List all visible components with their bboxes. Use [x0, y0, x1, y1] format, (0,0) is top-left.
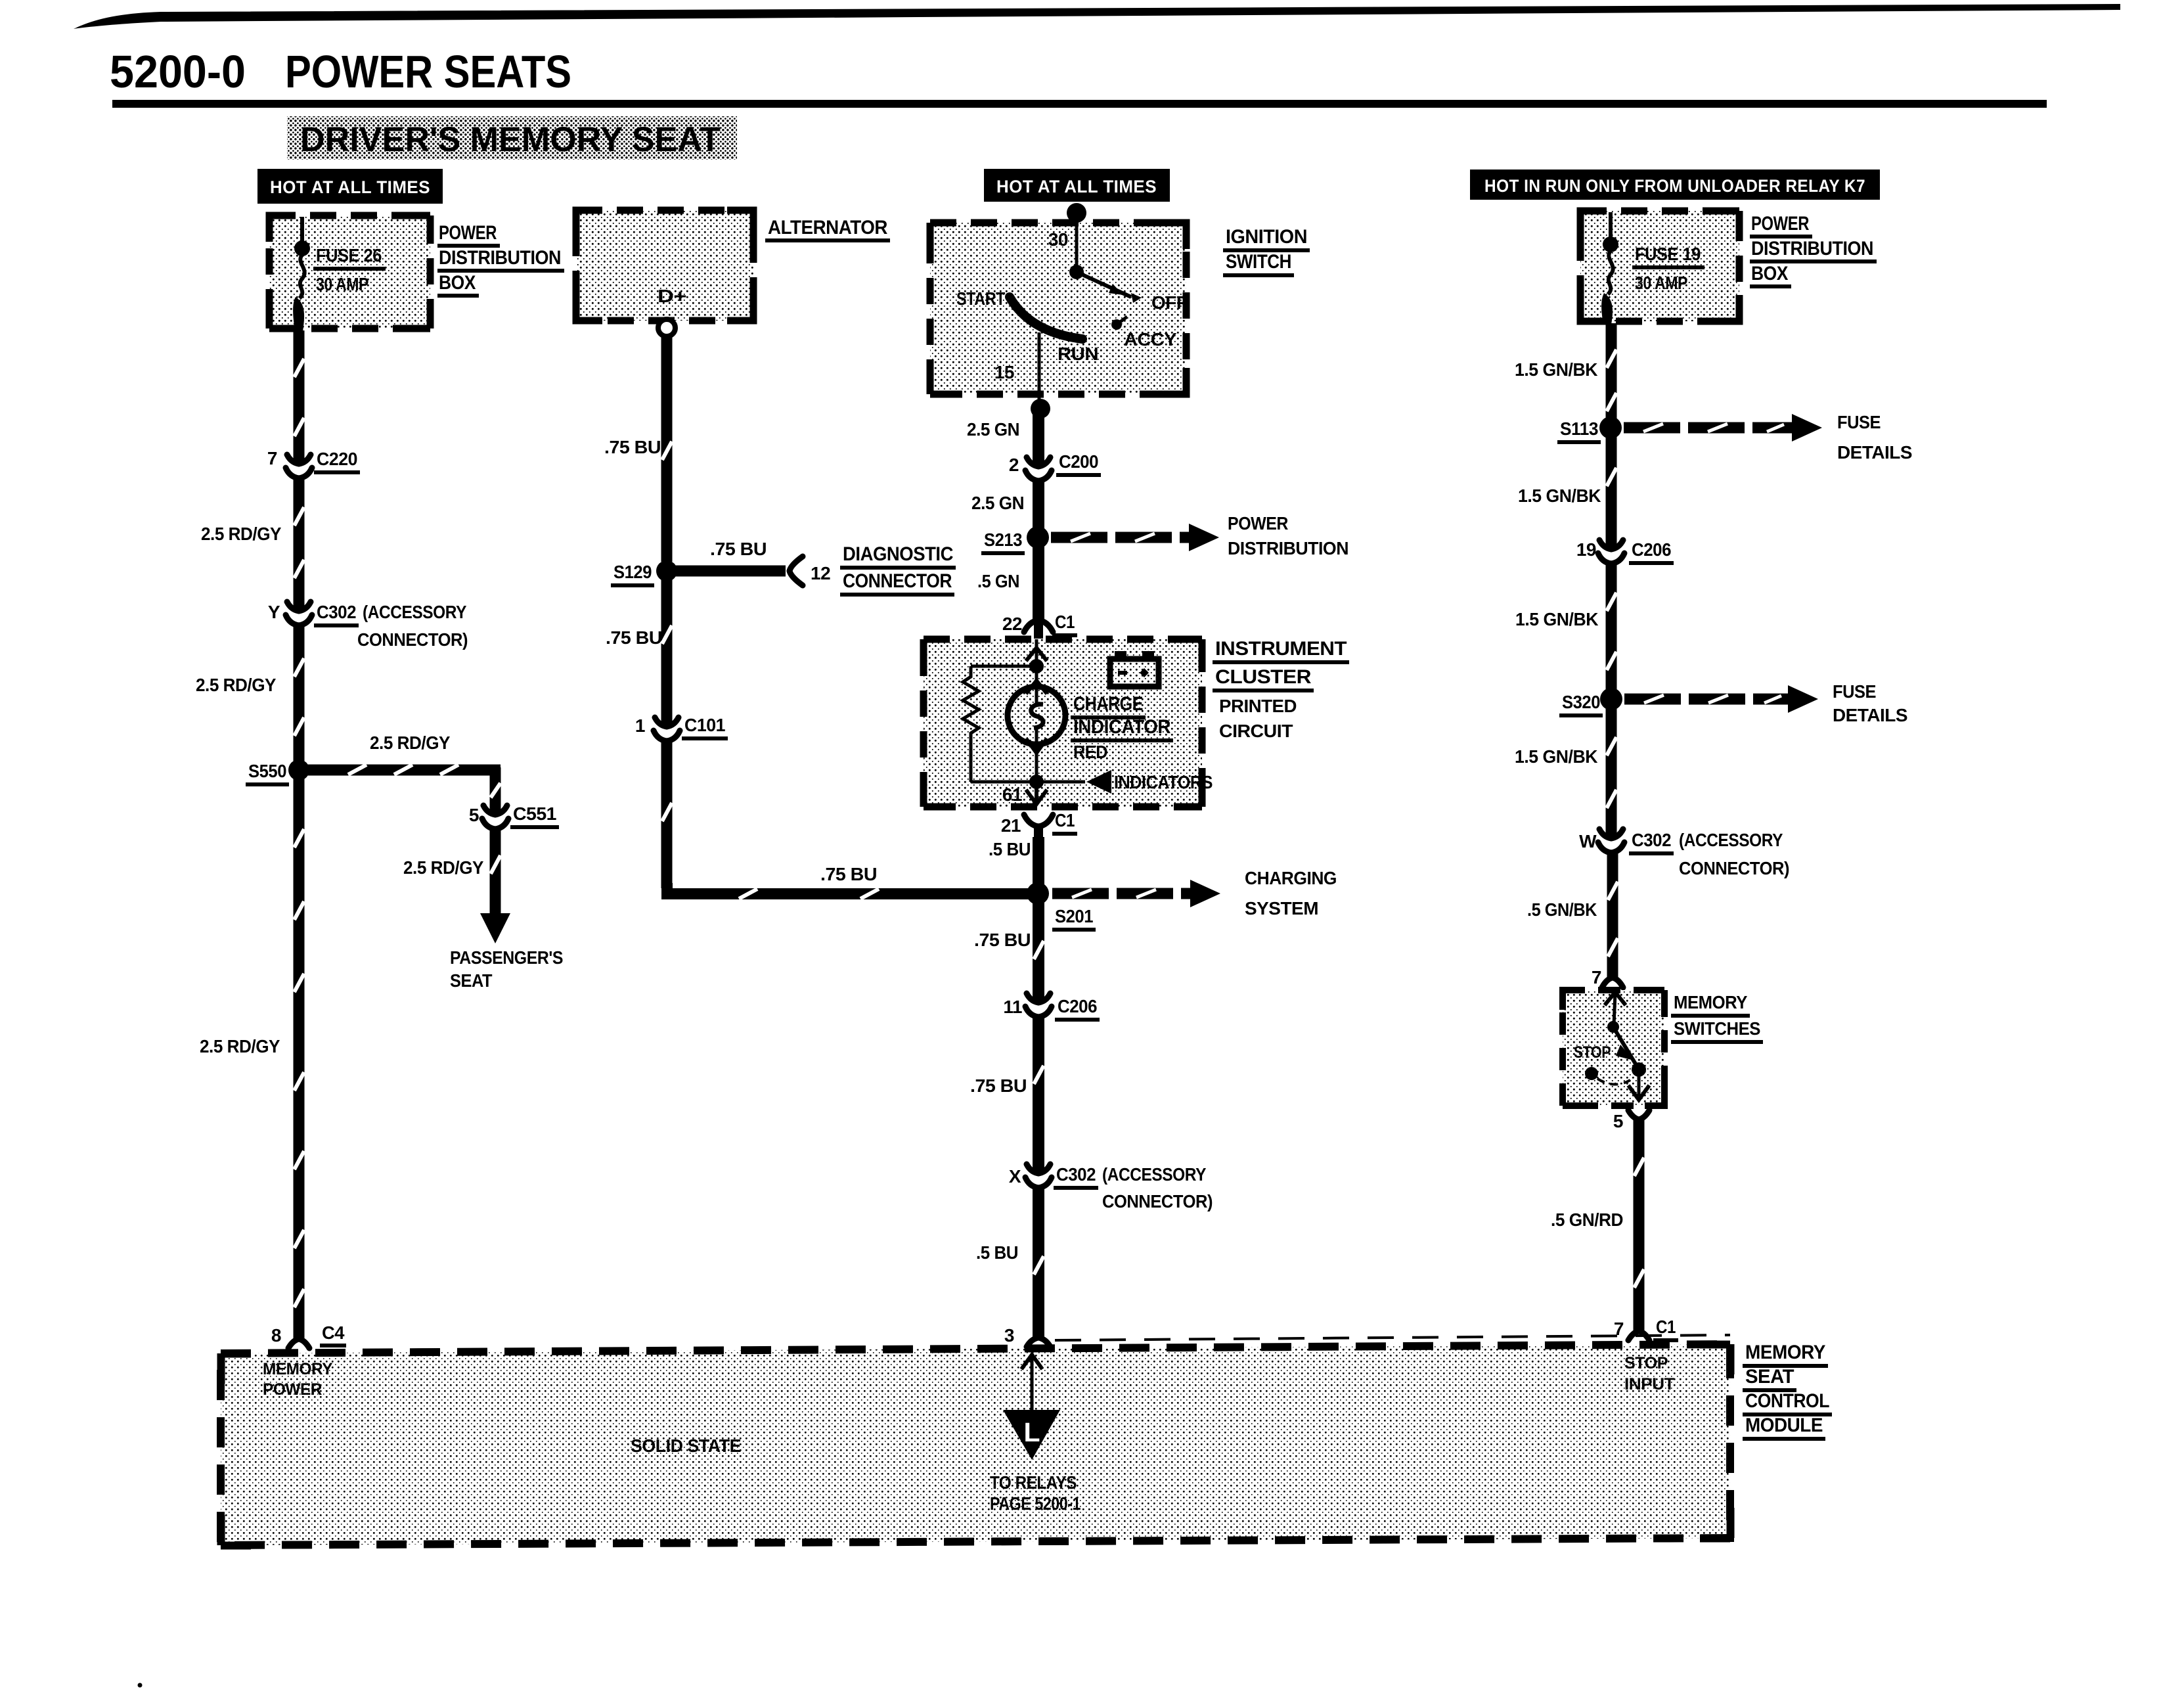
- svg-text:5: 5: [469, 805, 479, 825]
- svg-text:ACCY: ACCY: [1124, 329, 1177, 350]
- svg-text:SEAT: SEAT: [1745, 1366, 1794, 1388]
- svg-text:S201: S201: [1055, 906, 1093, 926]
- svg-text:15: 15: [994, 362, 1014, 382]
- svg-text:C206: C206: [1632, 539, 1671, 560]
- svg-text:.5 GN/BK: .5 GN/BK: [1527, 899, 1597, 920]
- svg-text:3: 3: [1004, 1325, 1014, 1346]
- svg-text:2.5 RD/GY: 2.5 RD/GY: [200, 1036, 280, 1056]
- svg-text:CONTROL: CONTROL: [1745, 1390, 1829, 1412]
- svg-text:POWER: POWER: [439, 222, 497, 244]
- svg-text:POWER: POWER: [1228, 513, 1288, 533]
- svg-text:C1: C1: [1055, 810, 1075, 830]
- svg-text:5200-0: 5200-0: [110, 46, 246, 97]
- svg-text:MEMORY: MEMORY: [1745, 1342, 1825, 1363]
- svg-text:S113: S113: [1560, 419, 1598, 439]
- svg-text:MODULE: MODULE: [1745, 1414, 1823, 1436]
- svg-text:SWITCH: SWITCH: [1226, 251, 1291, 273]
- svg-text:7: 7: [1592, 967, 1601, 987]
- svg-text:.75 BU: .75 BU: [710, 539, 767, 559]
- svg-text:S550: S550: [248, 761, 286, 781]
- svg-text:HOT AT ALL TIMES: HOT AT ALL TIMES: [270, 177, 430, 197]
- svg-text:.75 BU: .75 BU: [606, 627, 662, 648]
- svg-text:30 AMP: 30 AMP: [316, 274, 368, 294]
- svg-text:.75 BU: .75 BU: [970, 1075, 1027, 1096]
- svg-text:30: 30: [1048, 229, 1068, 250]
- svg-text:CONNECTOR: CONNECTOR: [843, 570, 952, 592]
- svg-text:INSTRUMENT: INSTRUMENT: [1215, 638, 1347, 660]
- svg-text:S129: S129: [613, 562, 652, 582]
- svg-text:SEAT: SEAT: [450, 970, 492, 991]
- svg-text:C302: C302: [1632, 830, 1671, 850]
- svg-text:CLUSTER: CLUSTER: [1215, 666, 1312, 688]
- svg-text:STOP: STOP: [1574, 1043, 1611, 1062]
- svg-text:2.5 RD/GY: 2.5 RD/GY: [196, 675, 277, 695]
- svg-text:CHARGE: CHARGE: [1073, 693, 1143, 715]
- svg-text:2.5 GN: 2.5 GN: [971, 493, 1024, 513]
- svg-text:.75 BU: .75 BU: [820, 864, 877, 884]
- svg-text:HOT IN RUN ONLY FROM UNLOADER: HOT IN RUN ONLY FROM UNLOADER RELAY K7: [1484, 176, 1865, 196]
- svg-text:2.5 RD/GY: 2.5 RD/GY: [370, 733, 451, 753]
- svg-text:PRINTED: PRINTED: [1219, 696, 1297, 716]
- svg-text:1.5 GN/BK: 1.5 GN/BK: [1515, 359, 1597, 380]
- svg-text:START: START: [956, 288, 1005, 309]
- svg-text:.75 BU: .75 BU: [974, 930, 1031, 950]
- svg-text:L: L: [1023, 1417, 1040, 1447]
- svg-text:7: 7: [267, 448, 277, 468]
- svg-text:DETAILS: DETAILS: [1833, 705, 1907, 725]
- svg-text:DETAILS: DETAILS: [1837, 442, 1912, 463]
- svg-text:MEMORY: MEMORY: [1674, 992, 1748, 1012]
- svg-text:.5 BU: .5 BU: [989, 839, 1031, 859]
- svg-text:2: 2: [1009, 455, 1019, 475]
- svg-text:(ACCESSORY: (ACCESSORY: [1679, 830, 1783, 850]
- svg-text:.75 BU: .75 BU: [604, 437, 661, 457]
- svg-text:CONNECTOR): CONNECTOR): [357, 629, 468, 650]
- svg-text:IGNITION: IGNITION: [1226, 226, 1307, 248]
- svg-text:INDICATOR: INDICATOR: [1073, 716, 1171, 738]
- svg-text:11: 11: [1003, 997, 1022, 1017]
- svg-text:5: 5: [1613, 1111, 1623, 1131]
- svg-text:RED: RED: [1073, 742, 1107, 762]
- svg-text:C200: C200: [1059, 451, 1098, 472]
- svg-text:2.5 RD/GY: 2.5 RD/GY: [403, 857, 484, 878]
- svg-text:BOX: BOX: [439, 272, 476, 294]
- svg-text:.5 GN: .5 GN: [977, 571, 1019, 591]
- svg-text:Y: Y: [268, 602, 280, 622]
- svg-text:(ACCESSORY: (ACCESSORY: [1102, 1164, 1207, 1185]
- svg-text:DISTRIBUTION: DISTRIBUTION: [1228, 538, 1348, 558]
- svg-text:PAGE 5200-1: PAGE 5200-1: [990, 1493, 1081, 1514]
- svg-text:S213: S213: [984, 530, 1022, 550]
- svg-text:RUN: RUN: [1058, 344, 1098, 364]
- svg-text:ALTERNATOR: ALTERNATOR: [768, 217, 888, 238]
- svg-text:C302: C302: [1056, 1164, 1096, 1185]
- svg-text:INDICATORS: INDICATORS: [1114, 772, 1213, 792]
- svg-text:1.5 GN/BK: 1.5 GN/BK: [1515, 609, 1598, 629]
- svg-text:HOT AT ALL TIMES: HOT AT ALL TIMES: [996, 177, 1157, 196]
- svg-text:SWITCHES: SWITCHES: [1674, 1018, 1760, 1039]
- svg-text:C101: C101: [684, 715, 725, 735]
- svg-text:SOLID STATE: SOLID STATE: [631, 1436, 741, 1456]
- svg-text:POWER: POWER: [1751, 213, 1810, 235]
- svg-text:FUSE: FUSE: [1837, 412, 1881, 432]
- svg-text:CONNECTOR): CONNECTOR): [1679, 858, 1789, 878]
- svg-text:8: 8: [271, 1325, 281, 1346]
- svg-text:PASSENGER'S: PASSENGER'S: [450, 947, 563, 968]
- svg-text:FUSE: FUSE: [1833, 681, 1876, 702]
- svg-text:C302: C302: [317, 602, 356, 622]
- svg-text:BOX: BOX: [1751, 263, 1788, 284]
- svg-text:DISTRIBUTION: DISTRIBUTION: [439, 247, 561, 269]
- svg-text:FUSE 19: FUSE 19: [1635, 244, 1701, 264]
- svg-text:22: 22: [1002, 614, 1022, 634]
- svg-text:W: W: [1579, 831, 1597, 851]
- svg-text:C4: C4: [322, 1323, 345, 1343]
- svg-text:.5 BU: .5 BU: [976, 1242, 1018, 1263]
- svg-text:POWER SEATS: POWER SEATS: [285, 46, 571, 97]
- svg-text:12: 12: [811, 563, 830, 583]
- svg-text:30 AMP: 30 AMP: [1635, 273, 1687, 293]
- svg-text:C1: C1: [1656, 1317, 1676, 1337]
- svg-text:CHARGING: CHARGING: [1245, 868, 1337, 888]
- svg-text:TO RELAYS: TO RELAYS: [990, 1472, 1077, 1493]
- svg-text:1.5 GN/BK: 1.5 GN/BK: [1515, 746, 1597, 767]
- svg-text:MEMORY: MEMORY: [263, 1360, 333, 1378]
- svg-text:CIRCUIT: CIRCUIT: [1219, 721, 1293, 741]
- svg-text:19: 19: [1576, 539, 1596, 560]
- svg-text:C220: C220: [317, 449, 357, 469]
- svg-text:POWER: POWER: [263, 1380, 322, 1399]
- svg-text:C206: C206: [1058, 996, 1097, 1016]
- svg-text:2.5 GN: 2.5 GN: [967, 419, 1019, 440]
- svg-text:INPUT: INPUT: [1624, 1375, 1674, 1393]
- svg-text:1.5 GN/BK: 1.5 GN/BK: [1518, 486, 1601, 506]
- svg-text:CONNECTOR): CONNECTOR): [1102, 1191, 1213, 1211]
- svg-text:21: 21: [1001, 815, 1021, 836]
- svg-text:.5 GN/RD: .5 GN/RD: [1551, 1210, 1623, 1230]
- svg-text:61: 61: [1002, 784, 1022, 805]
- svg-text:DIAGNOSTIC: DIAGNOSTIC: [843, 543, 953, 565]
- svg-text:STOP: STOP: [1624, 1354, 1668, 1372]
- svg-text:OFF: OFF: [1151, 292, 1188, 313]
- svg-text:C1: C1: [1055, 612, 1075, 632]
- svg-text:2.5 RD/GY: 2.5 RD/GY: [201, 524, 282, 544]
- svg-text:D+: D+: [657, 286, 686, 306]
- svg-text:S320: S320: [1562, 692, 1600, 712]
- svg-text:DRIVER'S MEMORY SEAT: DRIVER'S MEMORY SEAT: [300, 120, 721, 159]
- svg-text:SYSTEM: SYSTEM: [1245, 898, 1318, 918]
- svg-text:FUSE 26: FUSE 26: [316, 245, 382, 265]
- svg-text:1: 1: [635, 715, 645, 736]
- svg-text:C551: C551: [513, 803, 556, 824]
- svg-text:X: X: [1009, 1166, 1021, 1187]
- svg-text:DISTRIBUTION: DISTRIBUTION: [1751, 238, 1873, 260]
- svg-text:(ACCESSORY: (ACCESSORY: [363, 602, 467, 622]
